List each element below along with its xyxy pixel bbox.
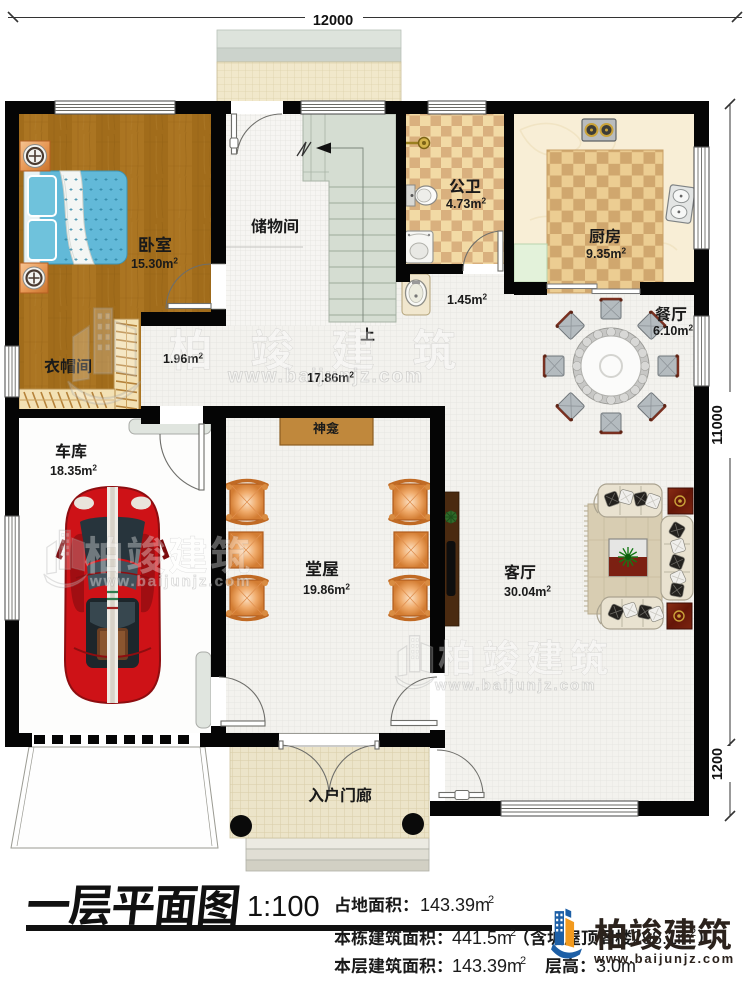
svg-text:9.35m2: 9.35m2 [586,247,626,261]
svg-text:441.5m: 441.5m [452,928,512,948]
svg-text:www.baijunjz.com: www.baijunjz.com [89,573,251,590]
svg-text:6.10m2: 6.10m2 [653,324,693,338]
svg-text:www.baijunjz.com: www.baijunjz.com [227,366,424,387]
svg-text:1200: 1200 [710,748,726,780]
svg-text:1:100: 1:100 [247,891,320,923]
svg-text:www.baijunjz.com: www.baijunjz.com [593,951,735,966]
svg-text:2: 2 [510,927,516,939]
svg-text:1.45m2: 1.45m2 [447,293,487,307]
svg-text:11000: 11000 [710,405,726,445]
svg-text:12000: 12000 [313,13,353,29]
svg-text:143.39m: 143.39m [420,895,490,915]
svg-text:15.30m2: 15.30m2 [131,257,178,271]
svg-text:18.35m2: 18.35m2 [50,464,97,478]
svg-text:19.86m2: 19.86m2 [303,583,350,597]
svg-text:30.04m2: 30.04m2 [504,585,551,599]
svg-text:www.baijunjz.com: www.baijunjz.com [434,677,596,694]
svg-text:4.73m2: 4.73m2 [446,197,486,211]
svg-text:143.39m: 143.39m [452,956,522,976]
svg-text:2: 2 [488,894,494,906]
svg-text:2: 2 [520,955,526,967]
